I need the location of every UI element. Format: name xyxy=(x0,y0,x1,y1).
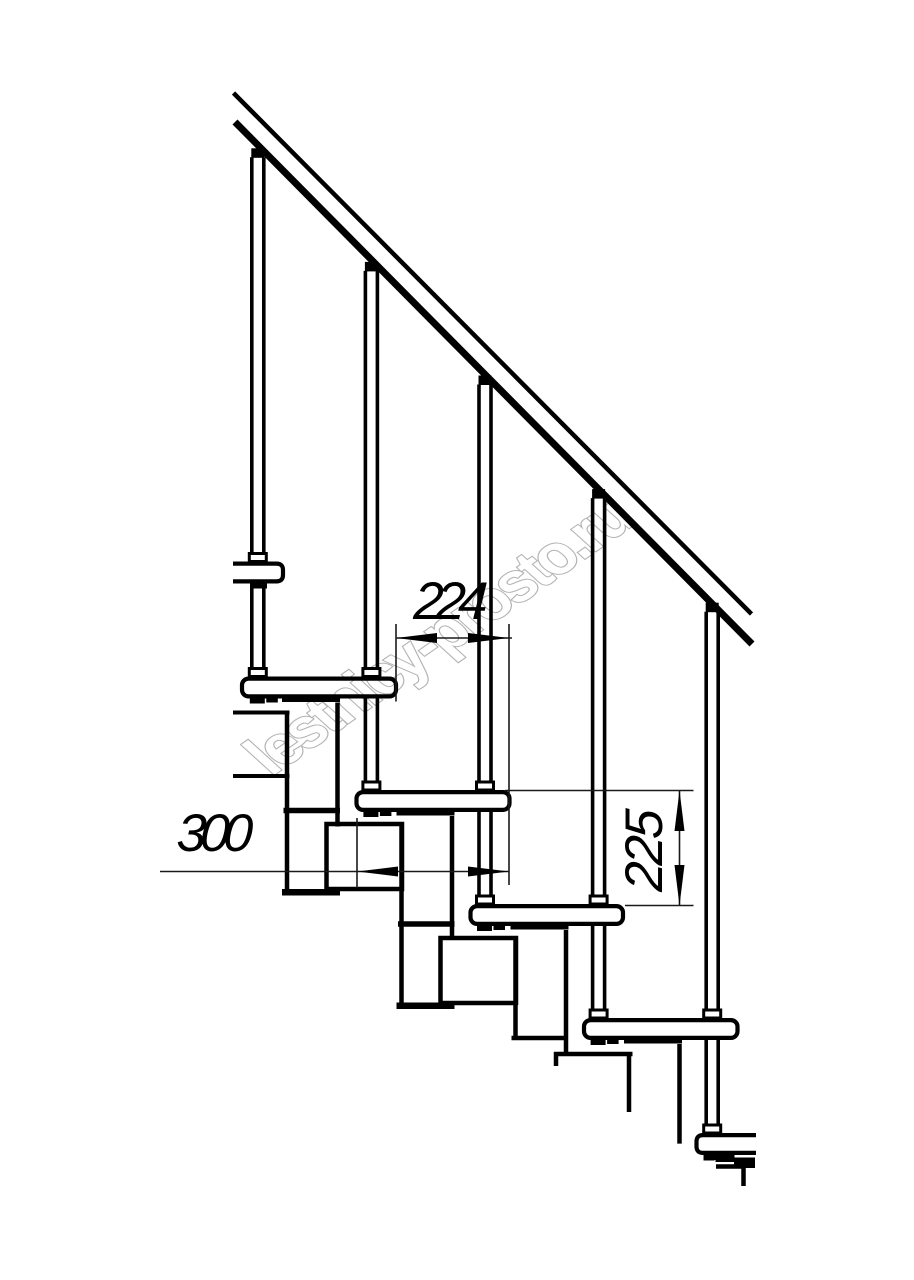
svg-text:224: 224 xyxy=(411,572,489,631)
svg-text:225: 225 xyxy=(615,807,674,894)
svg-text:300: 300 xyxy=(175,804,255,863)
